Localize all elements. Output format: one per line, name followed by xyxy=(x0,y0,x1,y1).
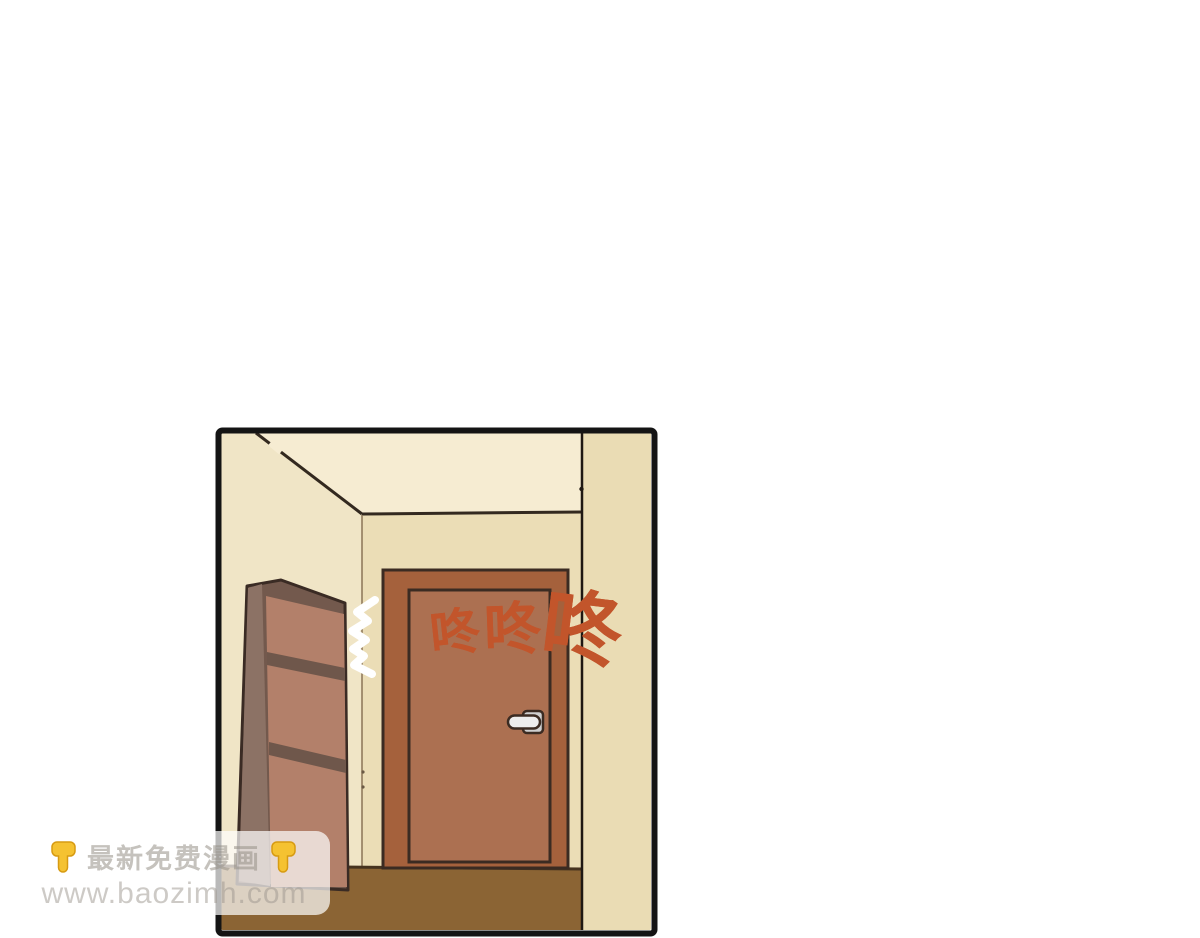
pointing-down-icon xyxy=(269,840,299,874)
site-watermark: 最新免费漫画 www.baozimh.com xyxy=(18,831,330,915)
watermark-url: www.baozimh.com xyxy=(41,877,306,911)
watermark-line1: 最新免费漫画 xyxy=(49,837,299,876)
pointing-down-icon xyxy=(49,840,79,874)
seam-dot xyxy=(361,770,364,773)
sfx-knock-char: 咚 xyxy=(428,606,483,661)
sfx-knock-char: 咚 xyxy=(483,601,542,660)
right-wall xyxy=(582,433,651,930)
wall-line-blob xyxy=(579,487,583,491)
sfx-knock-char: 咚 xyxy=(537,585,626,674)
seam-dot xyxy=(361,785,364,788)
watermark-text: 最新免费漫画 xyxy=(87,837,261,876)
ceiling-horizontal-line xyxy=(362,512,582,514)
comic-page: 咚 咚 咚 最新免费漫画 www.baozimh.com xyxy=(0,0,1200,938)
comic-panel-art xyxy=(0,0,1200,938)
